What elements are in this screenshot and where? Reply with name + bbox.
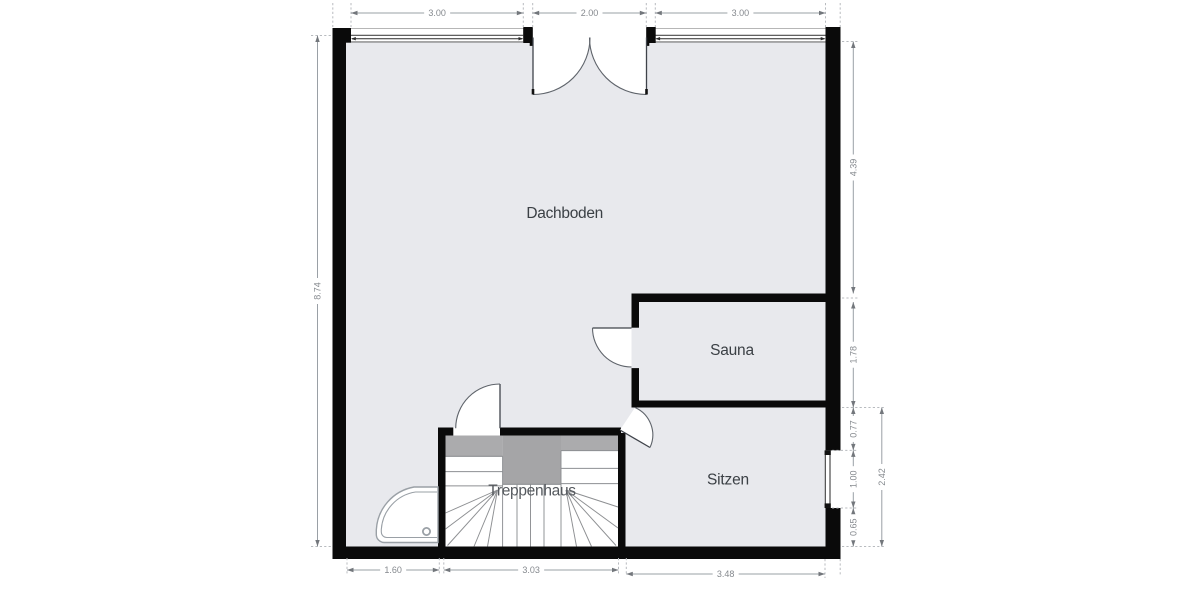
svg-text:0.65: 0.65	[849, 518, 859, 536]
svg-text:3.00: 3.00	[732, 8, 750, 18]
svg-text:1.00: 1.00	[849, 470, 859, 488]
svg-text:3.00: 3.00	[428, 8, 446, 18]
svg-text:3.03: 3.03	[522, 565, 540, 575]
svg-text:4.39: 4.39	[849, 159, 859, 177]
svg-text:Sauna: Sauna	[710, 342, 754, 359]
svg-text:1.78: 1.78	[849, 346, 859, 364]
svg-text:2.42: 2.42	[877, 468, 887, 486]
svg-text:Treppenhaus: Treppenhaus	[488, 483, 576, 500]
svg-text:1.60: 1.60	[384, 565, 402, 575]
svg-text:Sitzen: Sitzen	[707, 472, 749, 489]
svg-text:2.00: 2.00	[581, 8, 599, 18]
svg-text:3.48: 3.48	[717, 569, 735, 579]
svg-text:8.74: 8.74	[313, 282, 323, 300]
svg-text:0.77: 0.77	[849, 420, 859, 438]
svg-text:Dachboden: Dachboden	[526, 205, 603, 222]
